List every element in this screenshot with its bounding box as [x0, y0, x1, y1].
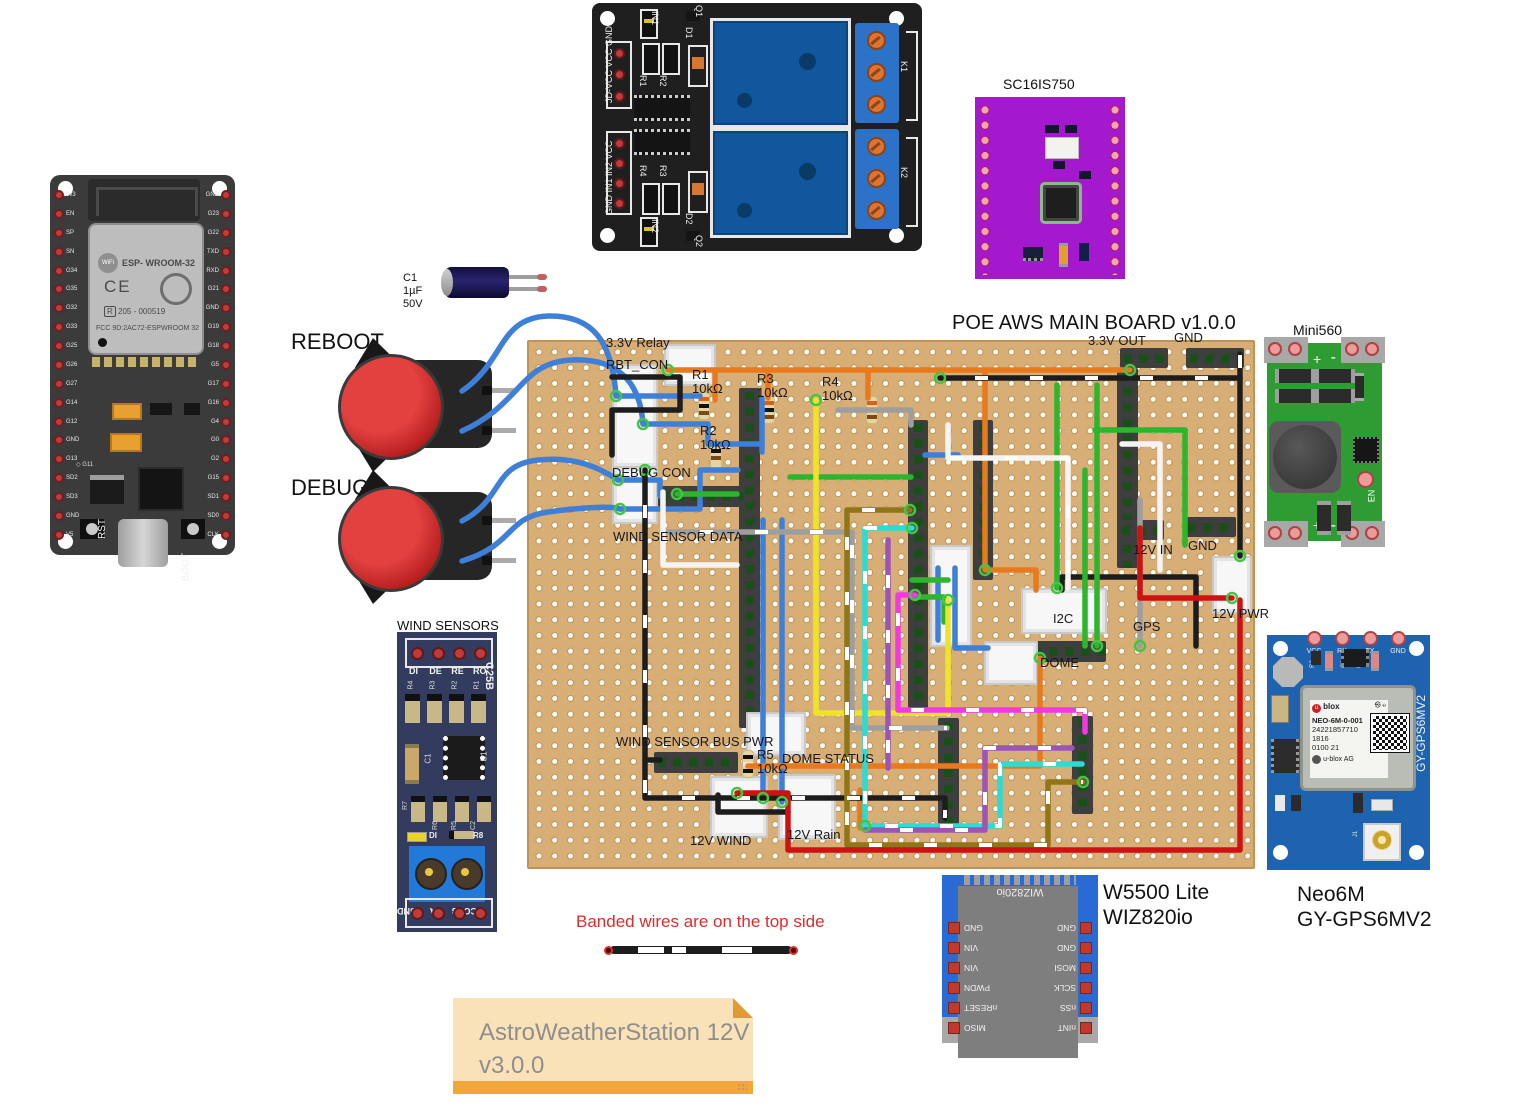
pin[interactable]: [221, 492, 231, 502]
pad[interactable]: [948, 943, 960, 955]
note-fold: [733, 998, 753, 1018]
pad[interactable]: [1080, 963, 1092, 975]
pin[interactable]: [614, 178, 625, 189]
conn-12v-pwr[interactable]: [1212, 556, 1252, 614]
smd: [1325, 651, 1333, 671]
resistor-r3: [662, 183, 680, 215]
pin[interactable]: [614, 69, 625, 80]
antenna-trace: [88, 179, 200, 221]
smd-ic: [150, 403, 172, 415]
resistor-r3[interactable]: [763, 396, 775, 424]
pin[interactable]: [54, 284, 64, 294]
diode-d2: [688, 171, 708, 213]
pin-column[interactable]: [979, 103, 991, 275]
resistor-r4[interactable]: [866, 396, 878, 424]
mount-hole: [1273, 845, 1288, 860]
pin[interactable]: [54, 303, 64, 313]
pin: [474, 907, 487, 920]
smd-part: [1065, 125, 1077, 133]
r4-label: R4: [638, 165, 648, 177]
esp32-left-pins: 3v3ENSPSNG34G35G32G33G25G26G27G14G12GNDG…: [54, 189, 79, 541]
pad[interactable]: [1080, 983, 1092, 995]
pin[interactable]: [221, 454, 231, 464]
conn-12v-wind[interactable]: [710, 776, 768, 838]
resistor: [1355, 373, 1364, 401]
banded-note: Banded wires are on the top side: [576, 912, 825, 932]
pin[interactable]: [221, 511, 231, 521]
capacitor: [1315, 389, 1355, 403]
smd: [1371, 799, 1393, 811]
header-bus-pwr[interactable]: [654, 752, 738, 773]
boot-button[interactable]: [181, 519, 205, 539]
mount-hole: [889, 228, 904, 243]
esp-shield: WiFi ESP- WROOM-32 CE R 205 - 000519 FCC…: [88, 223, 204, 355]
pin: [432, 647, 445, 660]
pad[interactable]: [1080, 1003, 1092, 1015]
pin: [1363, 631, 1378, 646]
ce-mark: CE: [104, 277, 132, 297]
pin: [1307, 631, 1322, 646]
cert-number: R 205 - 000519: [104, 307, 165, 316]
crystal: [1045, 137, 1079, 159]
gps-board[interactable]: VCCRXTXGND R3D2C2U2C1 u blox ㉿ ℮ NEO-6M-…: [1267, 635, 1430, 870]
smd: [1353, 793, 1363, 813]
gps-side-label: GY-GPS6MV2: [1414, 695, 1428, 772]
rst-label: RST: [97, 519, 108, 539]
crystal: [1273, 657, 1303, 687]
header-center-left[interactable]: [739, 388, 760, 728]
pin[interactable]: [221, 303, 231, 313]
pin[interactable]: [221, 435, 231, 445]
wind-resistors: [405, 694, 486, 723]
fcc-id: FCC 9D:2AC72-ESPWROOM 32: [96, 325, 199, 332]
pin: [411, 907, 424, 920]
wind-sensor-board[interactable]: DIDERERO C25B R4R3R2R1 C1 U1 R7 R6 R5 C2…: [397, 632, 497, 932]
capacitor: [1275, 369, 1315, 383]
pin[interactable]: [614, 138, 625, 149]
smd: [1291, 795, 1301, 811]
regulator: [90, 475, 124, 504]
w5500-silk: nINTnSSSCLKMOSIGNDGND MISOnRESETPWDNVINV…: [942, 875, 1098, 1058]
pin[interactable]: [221, 266, 231, 276]
sot23-part: [1023, 247, 1043, 261]
resistor-r2[interactable]: [710, 444, 722, 472]
pin[interactable]: [54, 247, 64, 257]
smd-part: [1079, 171, 1091, 179]
pin[interactable]: [54, 530, 64, 540]
note-resize-grip[interactable]: [737, 1083, 747, 1091]
k2-label: K2: [899, 167, 909, 178]
spiral-logo: [160, 273, 192, 305]
pin: [474, 647, 487, 660]
esp32-board[interactable]: WiFi ESP- WROOM-32 CE R 205 - 000519 FCC…: [50, 175, 235, 555]
pin[interactable]: [54, 454, 64, 464]
pin[interactable]: [54, 492, 64, 502]
pad[interactable]: [948, 983, 960, 995]
header-bottom-b[interactable]: [1072, 716, 1093, 814]
header-12v-in[interactable]: [1118, 520, 1164, 540]
pin[interactable]: [54, 266, 64, 276]
pin[interactable]: [614, 48, 625, 59]
pin[interactable]: [221, 379, 231, 389]
capacitor: [1337, 501, 1351, 535]
relay-module[interactable]: JD-VCC VCC GND GND IN1 IN2 VCC IN1 R1 R2…: [592, 3, 922, 251]
pin[interactable]: [221, 360, 231, 370]
pad[interactable]: [1080, 943, 1092, 955]
pin[interactable]: [221, 247, 231, 257]
eeprom: [1271, 695, 1289, 723]
pin[interactable]: [54, 398, 64, 408]
pin[interactable]: [221, 284, 231, 294]
header-bottom-a[interactable]: [938, 718, 959, 824]
r3-label: R3: [658, 165, 668, 177]
pad[interactable]: [948, 1023, 960, 1035]
terminal-k2[interactable]: [855, 129, 899, 229]
w5500-right-pins: nINTnSSSCLKMOSIGNDGND: [1054, 923, 1092, 1034]
relay-k1[interactable]: [710, 18, 851, 128]
pin[interactable]: [221, 341, 231, 351]
header-center[interactable]: [908, 420, 928, 710]
capacitor: [1275, 389, 1315, 403]
header-3v3-out[interactable]: [1120, 348, 1168, 368]
diode-d1: [688, 45, 708, 87]
header-gps[interactable]: [1030, 641, 1106, 662]
pad[interactable]: [948, 1003, 960, 1015]
header-gnd-mid[interactable]: [1184, 517, 1236, 537]
wind-title: WIND SENSORS: [397, 618, 499, 633]
wind-terminal[interactable]: [409, 846, 485, 902]
lead-tip: [537, 274, 547, 280]
smd-capacitor: [112, 403, 142, 420]
r1-label: R1: [638, 75, 648, 87]
pin[interactable]: [54, 209, 64, 219]
d2-label: D2: [684, 213, 694, 225]
sc16is750-title: SC16IS750: [1003, 76, 1075, 92]
jdvcc-labels: JD-VCC VCC GND: [604, 26, 614, 103]
in2-label: IN2: [650, 219, 660, 233]
wind-bottom-header[interactable]: [405, 898, 493, 928]
lead-tip: [537, 286, 547, 292]
pin[interactable]: [614, 91, 625, 102]
resistor-r4: [642, 183, 660, 215]
u1-ic: [1271, 739, 1299, 773]
pad[interactable]: [948, 963, 960, 975]
in1-label: IN1: [650, 11, 660, 25]
pin[interactable]: [54, 417, 64, 427]
input-labels: GND IN1 IN2 VCC: [604, 140, 614, 215]
sc16is750-board[interactable]: [975, 97, 1125, 279]
capacitor-cap: [441, 269, 453, 296]
resistor-r2: [662, 43, 680, 75]
capacitor-body[interactable]: [445, 267, 509, 298]
sc16is750-chip: [1043, 185, 1079, 221]
wind-top-res-labels: R4R3R2R1: [405, 680, 483, 687]
smd-ic: [184, 403, 200, 415]
conn-i2c[interactable]: [1021, 588, 1107, 634]
pin[interactable]: [221, 473, 231, 483]
pin-column[interactable]: [1109, 103, 1121, 275]
w5500-caption: W5500 LiteWIZ820io: [1103, 880, 1209, 930]
en-label: EN: [1367, 490, 1377, 503]
header-center-right[interactable]: [973, 420, 993, 580]
pin[interactable]: [54, 435, 64, 445]
sticky-note[interactable]: AstroWeatherStation 12Vv3.0.0: [453, 998, 753, 1094]
w5500-board[interactable]: nINTnSSSCLKMOSIGNDGND MISOnRESETPWDNVINV…: [942, 875, 1098, 1043]
c25b-label: C25B: [483, 662, 495, 690]
smd: [1371, 651, 1379, 671]
tantalum-cap: [1059, 243, 1068, 267]
pin[interactable]: [221, 530, 231, 540]
module-name: ESP- WROOM-32: [122, 258, 195, 268]
pin[interactable]: [614, 198, 625, 209]
k1-label: K1: [899, 61, 909, 72]
conn-3v3-relay[interactable]: [664, 344, 716, 386]
pin[interactable]: [614, 158, 625, 169]
pin[interactable]: [54, 360, 64, 370]
banded-wire-sample: [610, 946, 792, 954]
mount-hole: [600, 11, 615, 26]
smd-part: [1045, 125, 1059, 133]
capacitor-lead: [509, 287, 539, 291]
pin[interactable]: [54, 190, 64, 200]
pin: [1335, 631, 1350, 646]
wind-lower-parts: [411, 796, 491, 822]
di-led-label: DI: [429, 831, 437, 840]
smd: [1311, 651, 1321, 665]
antenna-connector[interactable]: [1363, 823, 1401, 861]
q1-label: Q1: [694, 5, 704, 17]
pin: [1391, 631, 1406, 646]
optocoupler: [634, 95, 690, 121]
plus-mark: +: [1313, 351, 1321, 367]
pin[interactable]: [221, 417, 231, 427]
smd: [1275, 795, 1285, 811]
en-pad[interactable]: [1357, 471, 1374, 488]
r2-label: R2: [658, 75, 668, 87]
j1-label: J1: [1353, 831, 1359, 837]
conn-dome[interactable]: [984, 641, 1038, 685]
pin[interactable]: [221, 228, 231, 238]
castellated-pads: [92, 357, 196, 367]
conn-center[interactable]: [930, 545, 972, 647]
capacitor-lead: [509, 275, 539, 279]
r8-label: R8: [473, 831, 483, 840]
minus-mark: -: [1331, 349, 1336, 367]
smd-cap: [1079, 243, 1089, 261]
k2-bracket: [906, 137, 918, 227]
pin[interactable]: [54, 511, 64, 521]
note-text: AstroWeatherStation 12Vv3.0.0: [479, 1016, 749, 1082]
header-gnd-top[interactable]: [1186, 348, 1244, 368]
resistor-r5[interactable]: [742, 750, 754, 778]
pin[interactable]: [221, 209, 231, 219]
board-title: POE AWS MAIN BOARD v1.0.0: [952, 312, 1236, 335]
wind-top-header[interactable]: [405, 638, 493, 668]
terminal-k1[interactable]: [855, 23, 899, 123]
conn-debug[interactable]: [612, 466, 658, 524]
smd-capacitor: [110, 433, 142, 452]
note-bar: [453, 1081, 753, 1094]
pad[interactable]: [1080, 1023, 1092, 1035]
pin[interactable]: [54, 228, 64, 238]
mini560-title: Mini560: [1293, 322, 1342, 338]
wind-lower-labels: R6 R5 C2: [431, 822, 478, 829]
usb-uart-chip: [138, 467, 184, 511]
micro-usb-port: [118, 519, 168, 567]
c1-label: C11µF50V: [403, 272, 423, 311]
pin[interactable]: [54, 341, 64, 351]
capacitor: [1315, 369, 1355, 383]
capacitor: [1317, 501, 1331, 535]
pad[interactable]: [948, 923, 960, 935]
conn-bus-pwr[interactable]: [746, 712, 806, 756]
qr-code: [1371, 714, 1409, 752]
optocoupler: [634, 129, 690, 155]
module-text: WIZ820io: [942, 886, 1098, 898]
fritzing-diagram: WiFi ESP- WROOM-32 CE R 205 - 000519 FCC…: [0, 0, 1533, 1106]
c1-cap: [405, 744, 419, 784]
pin: [432, 907, 445, 920]
buck-ic: [1353, 437, 1379, 463]
u2-ic: [1341, 649, 1369, 667]
resistor-r1: [642, 43, 660, 75]
boot-label: BOOT: [180, 553, 191, 581]
smd-part: [1053, 161, 1065, 169]
k1-bracket: [906, 31, 918, 121]
mount-hole: [1409, 845, 1424, 860]
esp32-right-pins: GNDG23G22TXDRXDG21GNDG19G18G5G17G16G4G0G…: [206, 189, 231, 541]
shield-dot: [98, 338, 107, 347]
q2-label: Q2: [694, 235, 704, 247]
di-led: [407, 832, 427, 842]
wifi-logo: WiFi: [98, 253, 118, 273]
r7-label: R7: [402, 801, 409, 810]
wind-top-labels: DIDERERO: [407, 666, 486, 676]
pin[interactable]: [54, 473, 64, 483]
pin: [411, 647, 424, 660]
pin[interactable]: [54, 379, 64, 389]
mount-hole: [1273, 641, 1288, 656]
pin: [453, 647, 466, 660]
pin[interactable]: [54, 322, 64, 332]
r8-part: [449, 831, 474, 839]
mini560-board[interactable]: + - + - EN: [1267, 343, 1382, 541]
header-debug-con[interactable]: [656, 486, 744, 507]
pin[interactable]: [221, 398, 231, 408]
pin: [453, 907, 466, 920]
u1-label: U1: [480, 751, 489, 761]
d1-label: D1: [684, 27, 694, 39]
conn-rbt[interactable]: [612, 364, 658, 468]
mount-hole: [600, 228, 615, 243]
pin[interactable]: [221, 322, 231, 332]
gps-caption: Neo6MGY-GPS6MV2: [1297, 882, 1432, 932]
mount-hole: [1409, 641, 1424, 656]
relay-k2[interactable]: [710, 128, 851, 238]
c1-label: C1: [424, 753, 433, 763]
resistor-r1[interactable]: [698, 392, 710, 420]
pad[interactable]: [1080, 923, 1092, 935]
pin[interactable]: [221, 190, 231, 200]
minus-mark: -: [1331, 517, 1336, 535]
neo6m-module: u blox ㉿ ℮ NEO-6M-0-001 24221857710 1816…: [1300, 685, 1416, 791]
w5500-left-pins: MISOnRESETPWDNVINVINGND: [948, 923, 997, 1034]
conn-12v-rain[interactable]: [778, 774, 836, 840]
inductor: [1273, 425, 1337, 489]
